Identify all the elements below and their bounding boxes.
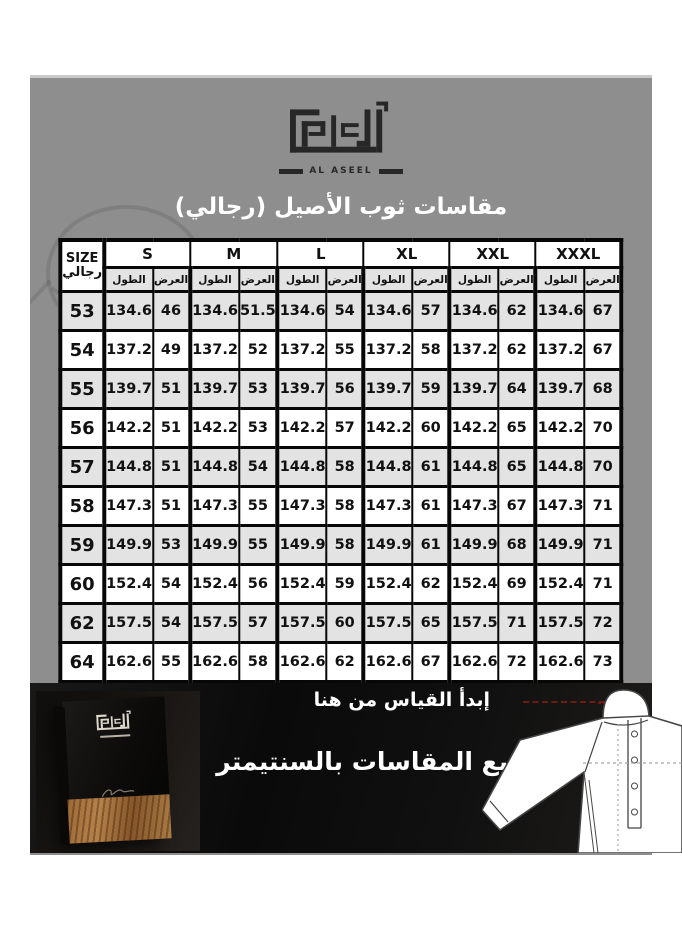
length-cell: 157.5 — [104, 604, 153, 643]
length-cell: 144.8 — [536, 448, 585, 487]
length-cell: 147.3 — [364, 487, 413, 526]
length-cell: 157.5 — [278, 604, 327, 643]
width-cell: 55 — [239, 487, 278, 526]
length-cell: 134.6 — [278, 292, 327, 331]
size-value-cell: 62 — [60, 604, 104, 643]
width-cell: 61 — [413, 448, 450, 487]
thobe-illustration — [482, 688, 682, 853]
length-cell: 144.8 — [278, 448, 327, 487]
length-cell: 149.9 — [536, 526, 585, 565]
width-subheader: العرض — [153, 268, 190, 292]
width-cell: 71 — [585, 565, 622, 604]
length-cell: 144.8 — [104, 448, 153, 487]
length-cell: 147.3 — [450, 487, 499, 526]
length-cell: 152.4 — [278, 565, 327, 604]
size-group-header: XXXL — [536, 240, 622, 268]
width-cell: 61 — [413, 487, 450, 526]
width-cell: 53 — [239, 409, 278, 448]
length-cell: 162.6 — [278, 643, 327, 683]
size-value-cell: 57 — [60, 448, 104, 487]
width-cell: 62 — [499, 292, 536, 331]
width-cell: 62 — [413, 565, 450, 604]
size-value-cell: 59 — [60, 526, 104, 565]
width-cell: 67 — [585, 331, 622, 370]
width-cell: 65 — [499, 448, 536, 487]
size-table: SIZEرجاليSMLXLXXLXXXLالطولالعرضالطولالعر… — [58, 238, 623, 684]
length-cell: 147.3 — [190, 487, 239, 526]
length-cell: 142.2 — [190, 409, 239, 448]
width-cell: 57 — [239, 604, 278, 643]
width-cell: 51 — [153, 409, 190, 448]
length-cell: 142.2 — [450, 409, 499, 448]
width-cell: 60 — [327, 604, 364, 643]
width-subheader: العرض — [585, 268, 622, 292]
size-value-cell: 56 — [60, 409, 104, 448]
width-cell: 55 — [153, 643, 190, 683]
box-brand-logo — [94, 710, 135, 738]
box-wood-base — [67, 794, 171, 843]
size-group-header: L — [278, 240, 364, 268]
width-cell: 71 — [585, 487, 622, 526]
length-subheader: الطول — [450, 268, 499, 292]
width-cell: 58 — [327, 448, 364, 487]
size-value-cell: 58 — [60, 487, 104, 526]
length-cell: 162.6 — [190, 643, 239, 683]
length-cell: 137.2 — [536, 331, 585, 370]
width-cell: 67 — [499, 487, 536, 526]
length-cell: 139.7 — [364, 370, 413, 409]
width-cell: 59 — [413, 370, 450, 409]
width-cell: 59 — [327, 565, 364, 604]
width-cell: 55 — [327, 331, 364, 370]
length-cell: 139.7 — [190, 370, 239, 409]
length-cell: 139.7 — [536, 370, 585, 409]
width-cell: 73 — [585, 643, 622, 683]
width-cell: 56 — [327, 370, 364, 409]
width-cell: 53 — [153, 526, 190, 565]
table-row: 60152.454152.456152.459152.462152.469152… — [60, 565, 621, 604]
width-cell: 62 — [499, 331, 536, 370]
size-value-cell: 53 — [60, 292, 104, 331]
length-cell: 137.2 — [104, 331, 153, 370]
length-subheader: الطول — [104, 268, 153, 292]
width-cell: 58 — [239, 643, 278, 683]
length-cell: 149.9 — [104, 526, 153, 565]
footer-banner: إبدأ القياس من هنا جميع المقاسات بالسنتي… — [0, 683, 682, 853]
length-cell: 137.2 — [190, 331, 239, 370]
length-cell: 134.6 — [364, 292, 413, 331]
size-column-header: SIZEرجالي — [60, 240, 104, 292]
size-group-header: XXL — [450, 240, 536, 268]
length-cell: 152.4 — [450, 565, 499, 604]
length-cell: 162.6 — [364, 643, 413, 683]
size-group-header: M — [190, 240, 278, 268]
width-cell: 56 — [239, 565, 278, 604]
table-row: 55139.751139.753139.756139.759139.764139… — [60, 370, 621, 409]
width-cell: 58 — [327, 526, 364, 565]
size-chart-infographic: AL ASEEL مقاسات ثوب الأصيل (رجالي) SIZEر… — [0, 0, 682, 931]
length-cell: 149.9 — [190, 526, 239, 565]
length-cell: 152.4 — [190, 565, 239, 604]
length-cell: 147.3 — [536, 487, 585, 526]
measure-start-label: إبدأ القياس من هنا — [314, 689, 490, 711]
length-cell: 142.2 — [364, 409, 413, 448]
width-cell: 49 — [153, 331, 190, 370]
width-cell: 58 — [413, 331, 450, 370]
table-row: 64162.655162.658162.662162.667162.672162… — [60, 643, 621, 683]
table-row: 53134.646134.651.5134.654134.657134.6621… — [60, 292, 621, 331]
width-cell: 65 — [499, 409, 536, 448]
width-cell: 51 — [153, 487, 190, 526]
width-cell: 54 — [153, 604, 190, 643]
width-cell: 54 — [153, 565, 190, 604]
length-cell: 152.4 — [104, 565, 153, 604]
size-value-cell: 55 — [60, 370, 104, 409]
width-cell: 55 — [239, 526, 278, 565]
table-row: 57144.851144.854144.858144.861144.865144… — [60, 448, 621, 487]
logo-left-bar — [279, 169, 303, 174]
size-value-cell: 64 — [60, 643, 104, 683]
length-cell: 142.2 — [536, 409, 585, 448]
width-cell: 61 — [413, 526, 450, 565]
length-cell: 149.9 — [364, 526, 413, 565]
length-cell: 157.5 — [190, 604, 239, 643]
size-header-ar: رجالي — [62, 266, 102, 280]
length-cell: 147.3 — [278, 487, 327, 526]
length-cell: 149.9 — [450, 526, 499, 565]
box-kufic-logo-icon — [96, 710, 133, 734]
length-cell: 139.7 — [278, 370, 327, 409]
table-row: 62157.554157.557157.560157.565157.571157… — [60, 604, 621, 643]
size-value-cell: 60 — [60, 565, 104, 604]
length-cell: 157.5 — [364, 604, 413, 643]
size-group-header: S — [104, 240, 190, 268]
length-subheader: الطول — [190, 268, 239, 292]
width-subheader: العرض — [327, 268, 364, 292]
width-cell: 64 — [499, 370, 536, 409]
size-header-en: SIZE — [62, 252, 102, 266]
length-cell: 137.2 — [364, 331, 413, 370]
length-cell: 147.3 — [104, 487, 153, 526]
length-cell: 139.7 — [104, 370, 153, 409]
width-cell: 62 — [327, 643, 364, 683]
width-cell: 51 — [153, 370, 190, 409]
length-cell: 134.6 — [190, 292, 239, 331]
width-cell: 52 — [239, 331, 278, 370]
length-cell: 152.4 — [536, 565, 585, 604]
box-logo-underline — [100, 734, 130, 738]
length-cell: 162.6 — [450, 643, 499, 683]
length-cell: 134.6 — [104, 292, 153, 331]
width-cell: 67 — [413, 643, 450, 683]
length-cell: 157.5 — [536, 604, 585, 643]
table-row: 59149.953149.955149.958149.961149.968149… — [60, 526, 621, 565]
width-cell: 58 — [327, 487, 364, 526]
chart-panel: AL ASEEL مقاسات ثوب الأصيل (رجالي) SIZEر… — [30, 75, 652, 686]
width-cell: 69 — [499, 565, 536, 604]
length-subheader: الطول — [536, 268, 585, 292]
width-cell: 54 — [239, 448, 278, 487]
width-cell: 65 — [413, 604, 450, 643]
length-cell: 142.2 — [278, 409, 327, 448]
length-cell: 162.6 — [536, 643, 585, 683]
length-cell: 142.2 — [104, 409, 153, 448]
width-cell: 46 — [153, 292, 190, 331]
size-value-cell: 54 — [60, 331, 104, 370]
width-cell: 54 — [327, 292, 364, 331]
width-cell: 51 — [153, 448, 190, 487]
width-subheader: العرض — [413, 268, 450, 292]
length-cell: 162.6 — [104, 643, 153, 683]
width-cell: 71 — [585, 526, 622, 565]
length-cell: 144.8 — [190, 448, 239, 487]
width-cell: 72 — [499, 643, 536, 683]
width-cell: 57 — [413, 292, 450, 331]
size-group-header: XL — [364, 240, 450, 268]
width-cell: 70 — [585, 409, 622, 448]
width-cell: 68 — [585, 370, 622, 409]
width-cell: 71 — [499, 604, 536, 643]
length-cell: 157.5 — [450, 604, 499, 643]
table-row: 54137.249137.252137.255137.258137.262137… — [60, 331, 621, 370]
product-box-photo — [36, 691, 200, 851]
length-cell: 134.6 — [536, 292, 585, 331]
table-row: 58147.351147.355147.358147.361147.367147… — [60, 487, 621, 526]
width-cell: 60 — [413, 409, 450, 448]
logo-right-bar — [379, 169, 403, 174]
width-subheader: العرض — [499, 268, 536, 292]
width-cell: 57 — [327, 409, 364, 448]
table-row: 56142.251142.253142.257142.260142.265142… — [60, 409, 621, 448]
length-cell: 137.2 — [450, 331, 499, 370]
length-cell: 149.9 — [278, 526, 327, 565]
width-subheader: العرض — [239, 268, 278, 292]
width-cell: 51.5 — [239, 292, 278, 331]
width-cell: 67 — [585, 292, 622, 331]
width-cell: 53 — [239, 370, 278, 409]
width-cell: 72 — [585, 604, 622, 643]
page-title: مقاسات ثوب الأصيل (رجالي) — [30, 194, 652, 220]
alaseel-kufic-logo-icon — [290, 101, 392, 163]
length-cell: 134.6 — [450, 292, 499, 331]
length-subheader: الطول — [278, 268, 327, 292]
brand-logo-subtitle: AL ASEEL — [271, 166, 411, 176]
length-subheader: الطول — [364, 268, 413, 292]
width-cell: 68 — [499, 526, 536, 565]
width-cell: 70 — [585, 448, 622, 487]
size-table-wrapper: SIZEرجاليSMLXLXXLXXXLالطولالعرضالطولالعر… — [58, 238, 623, 684]
product-box — [62, 696, 171, 843]
length-cell: 152.4 — [364, 565, 413, 604]
length-cell: 139.7 — [450, 370, 499, 409]
brand-logo: AL ASEEL — [271, 101, 411, 176]
brand-latin-name: AL ASEEL — [309, 166, 372, 176]
length-cell: 137.2 — [278, 331, 327, 370]
length-cell: 144.8 — [364, 448, 413, 487]
length-cell: 144.8 — [450, 448, 499, 487]
